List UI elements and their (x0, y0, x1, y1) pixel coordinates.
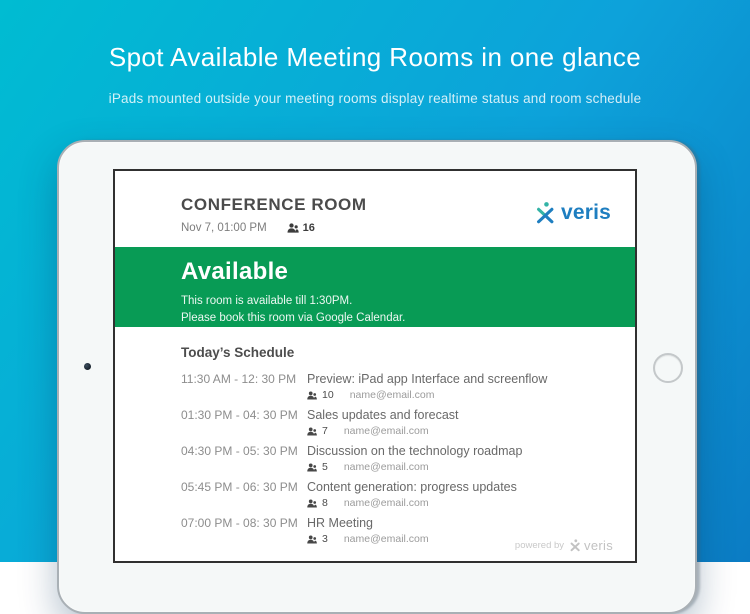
promo-background: Spot Available Meeting Rooms in one glan… (0, 0, 750, 562)
organizer-email: name@email.com (344, 425, 429, 437)
people-icon (307, 499, 317, 508)
people-icon (307, 535, 317, 544)
schedule-section: Today’s Schedule 11:30 AM - 12: 30 PM Pr… (115, 327, 635, 545)
event-attendees-row: 5 name@email.com (307, 461, 611, 473)
schedule-event-row: 01:30 PM - 04: 30 PM Sales updates and f… (181, 408, 611, 437)
room-datetime: Nov 7, 01:00 PM (181, 222, 267, 234)
attendee-count: 3 (322, 533, 328, 545)
schedule-event-row: 05:45 PM - 06: 30 PM Content generation:… (181, 480, 611, 509)
event-attendees-row: 8 name@email.com (307, 497, 611, 509)
event-attendees-row: 7 name@email.com (307, 425, 611, 437)
schedule-event-row: 11:30 AM - 12: 30 PM Preview: iPad app I… (181, 372, 611, 401)
attendee-count: 7 (322, 425, 328, 437)
veris-footer-logo-icon (569, 539, 581, 552)
schedule-list: 11:30 AM - 12: 30 PM Preview: iPad app I… (181, 372, 611, 545)
status-state: Available (181, 258, 611, 286)
room-header-left: CONFERENCE ROOM Nov 7, 01:00 PM 16 (181, 195, 367, 234)
room-name: CONFERENCE ROOM (181, 195, 367, 215)
organizer-email: name@email.com (344, 533, 429, 545)
schedule-heading: Today’s Schedule (181, 345, 611, 360)
powered-by-label: powered by (515, 540, 564, 551)
event-time: 01:30 PM - 04: 30 PM (181, 408, 307, 437)
veris-logo-text: veris (561, 201, 611, 225)
hero-section: Spot Available Meeting Rooms in one glan… (0, 0, 750, 106)
room-capacity: 16 (287, 222, 315, 234)
room-meta: Nov 7, 01:00 PM 16 (181, 222, 367, 234)
camera-icon (84, 363, 91, 370)
event-title: Content generation: progress updates (307, 480, 611, 494)
event-attendees-row: 10 name@email.com (307, 389, 611, 401)
event-time: 04:30 PM - 05: 30 PM (181, 444, 307, 473)
veris-logo-icon (534, 201, 556, 225)
event-time: 05:45 PM - 06: 30 PM (181, 480, 307, 509)
event-title: HR Meeting (307, 516, 611, 530)
veris-footer-logo-text: veris (584, 538, 613, 553)
home-button[interactable] (653, 353, 683, 383)
hero-subtitle: iPads mounted outside your meeting rooms… (0, 91, 750, 106)
room-capacity-count: 16 (303, 222, 315, 234)
ipad-screen: CONFERENCE ROOM Nov 7, 01:00 PM 16 (113, 169, 637, 563)
event-title: Preview: iPad app Interface and screenfl… (307, 372, 611, 386)
attendee-count: 10 (322, 389, 334, 401)
event-title: Discussion on the technology roadmap (307, 444, 611, 458)
veris-logo: veris (534, 201, 611, 225)
attendee-count: 5 (322, 461, 328, 473)
people-icon (307, 391, 317, 400)
people-icon (287, 223, 299, 233)
event-detail: Content generation: progress updates 8 n… (307, 480, 611, 509)
organizer-email: name@email.com (344, 497, 429, 509)
event-time: 07:00 PM - 08: 30 PM (181, 516, 307, 545)
event-detail: Discussion on the technology roadmap 5 n… (307, 444, 611, 473)
room-header: CONFERENCE ROOM Nov 7, 01:00 PM 16 (115, 171, 635, 247)
organizer-email: name@email.com (344, 461, 429, 473)
event-title: Sales updates and forecast (307, 408, 611, 422)
event-detail: Preview: iPad app Interface and screenfl… (307, 372, 611, 401)
people-icon (307, 427, 317, 436)
hero-title: Spot Available Meeting Rooms in one glan… (0, 42, 750, 73)
attendee-count: 8 (322, 497, 328, 509)
event-time: 11:30 AM - 12: 30 PM (181, 372, 307, 401)
status-line1: This room is available till 1:30PM. (181, 293, 611, 310)
status-line2: Please book this room via Google Calenda… (181, 310, 611, 327)
organizer-email: name@email.com (350, 389, 435, 401)
powered-by-footer: powered by veris (515, 538, 613, 553)
people-icon (307, 463, 317, 472)
schedule-event-row: 04:30 PM - 05: 30 PM Discussion on the t… (181, 444, 611, 473)
event-detail: Sales updates and forecast 7 name@email.… (307, 408, 611, 437)
status-banner: Available This room is available till 1:… (115, 247, 635, 327)
ipad-device: CONFERENCE ROOM Nov 7, 01:00 PM 16 (57, 140, 697, 614)
